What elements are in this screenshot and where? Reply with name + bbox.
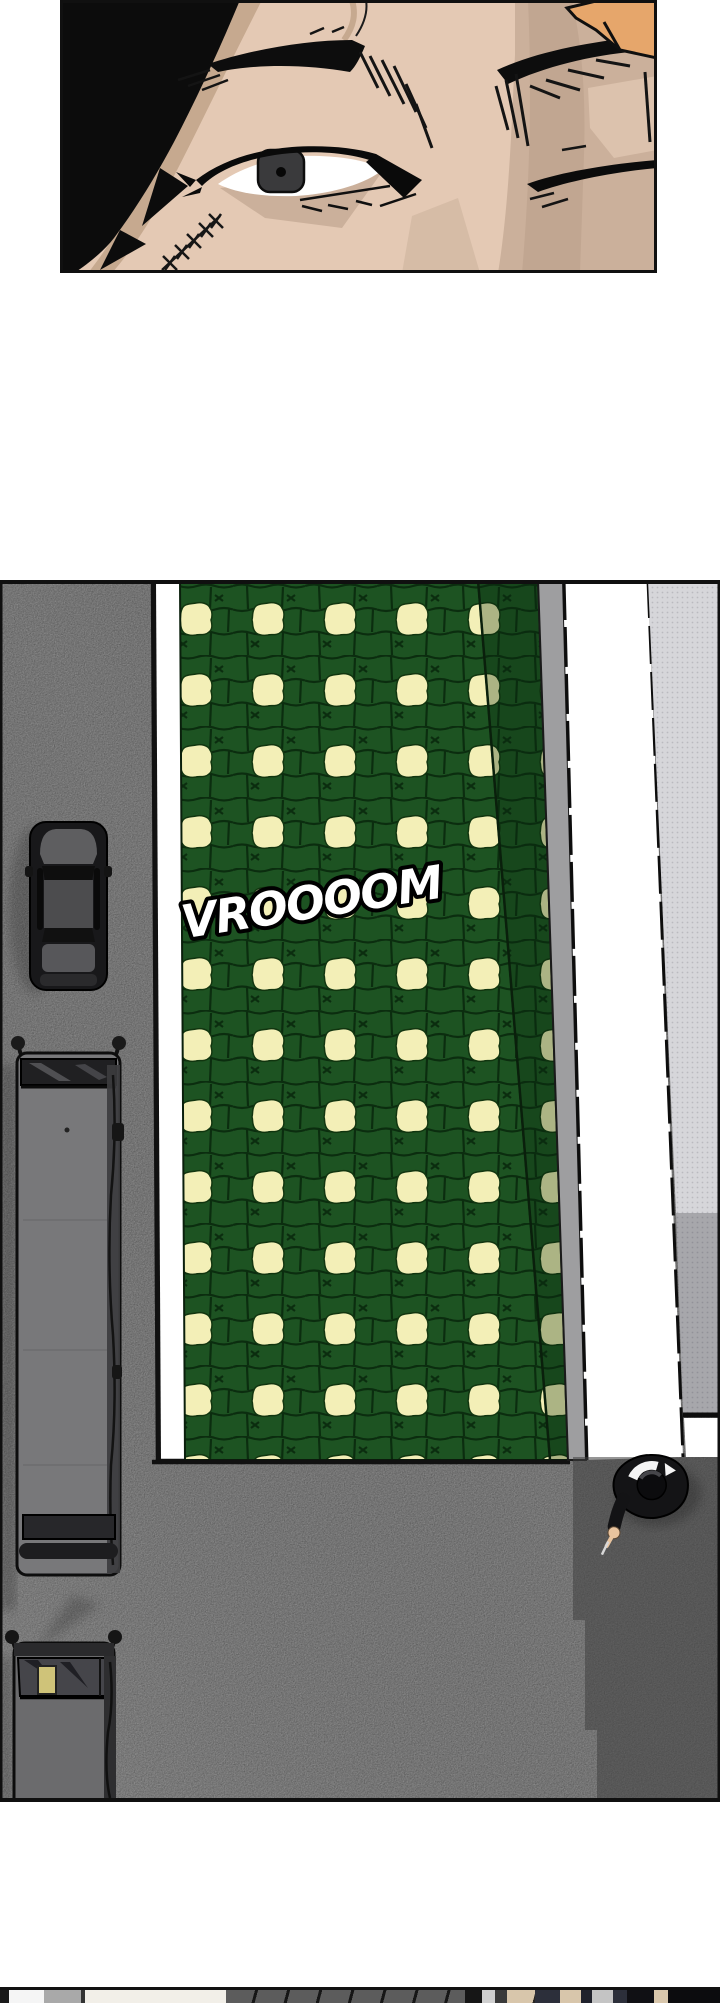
panel-street-overhead: VROOOOM xyxy=(0,580,720,1802)
panel3-segment xyxy=(44,1990,81,2003)
face-drawing xyxy=(60,0,657,273)
street-drawing: VROOOOM xyxy=(0,580,720,1802)
panel3-segment xyxy=(654,1990,668,2003)
panel3-segment xyxy=(560,1990,581,2003)
sedan-car xyxy=(9,822,112,994)
comic-page: VROOOOM xyxy=(0,0,720,2000)
panel3-segment xyxy=(482,1990,495,2003)
crosswalk xyxy=(152,580,570,1462)
panel-face-closeup xyxy=(60,0,657,273)
panel3-segment xyxy=(613,1990,627,2003)
panel3-segment xyxy=(535,1990,560,2003)
panel3-segment xyxy=(465,1990,482,2003)
panel3-segment xyxy=(668,1990,720,2003)
panel3-segment xyxy=(85,1990,226,2003)
panel3-segment xyxy=(507,1990,535,2003)
bus xyxy=(0,1036,126,1650)
panel3-segment xyxy=(592,1990,613,2003)
panel3-segment xyxy=(495,1990,507,2003)
truck xyxy=(0,1630,122,1802)
panel3-segment xyxy=(9,1990,44,2003)
panel3-segment xyxy=(0,1990,9,2003)
panel3-segment xyxy=(226,1990,465,2003)
panel3-segment xyxy=(581,1990,592,2003)
panel3-segment xyxy=(627,1990,654,2003)
panel-next-sliver xyxy=(0,1987,720,2003)
